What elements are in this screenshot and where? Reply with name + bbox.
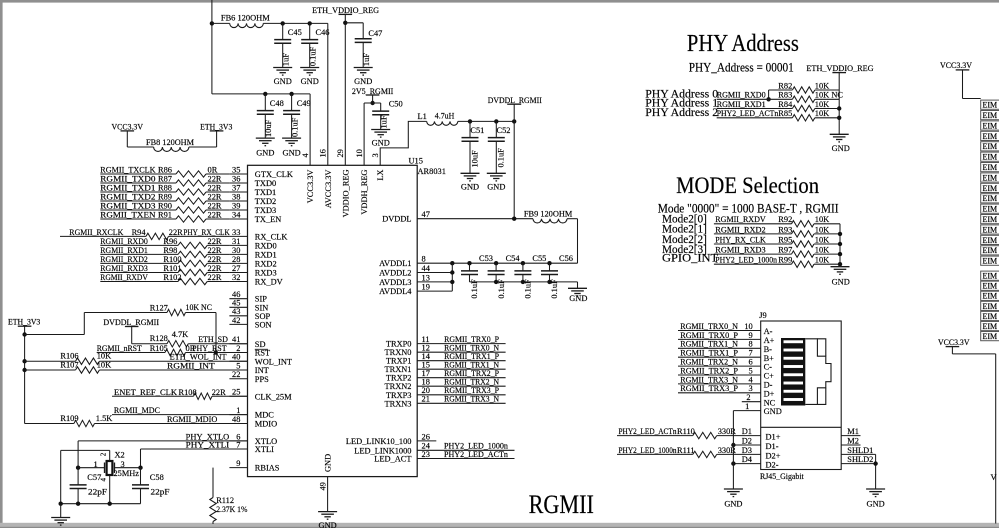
svg-text:RGMII_RXD0: RGMII_RXD0 <box>717 91 766 100</box>
svg-text:5: 5 <box>236 361 240 370</box>
svg-text:RGMII_TRX3_N: RGMII_TRX3_N <box>444 395 499 404</box>
svg-text:R94: R94 <box>132 228 147 237</box>
svg-text:C+: C+ <box>764 372 775 381</box>
svg-text:2: 2 <box>99 452 107 456</box>
svg-text:1: 1 <box>236 406 240 415</box>
svg-text:35: 35 <box>232 165 240 174</box>
svg-text:25MHz: 25MHz <box>114 469 140 478</box>
svg-text:GND: GND <box>764 407 782 416</box>
svg-text:0.1uF: 0.1uF <box>497 148 506 168</box>
svg-text:R92: R92 <box>778 215 792 224</box>
svg-text:3: 3 <box>121 460 125 469</box>
svg-text:34: 34 <box>232 210 241 219</box>
svg-text:EIM: EIM <box>983 194 998 203</box>
svg-text:RGMII_RXD2: RGMII_RXD2 <box>715 225 765 234</box>
svg-text:47: 47 <box>422 210 430 219</box>
svg-text:EIM: EIM <box>983 132 998 141</box>
svg-text:GND: GND <box>569 294 587 303</box>
svg-text:VDDH_REG: VDDH_REG <box>360 170 369 215</box>
svg-text:GND: GND <box>319 521 337 528</box>
svg-text:R84: R84 <box>778 100 793 109</box>
svg-text:40: 40 <box>232 353 240 362</box>
svg-text:27: 27 <box>232 264 240 273</box>
svg-text:RGMII_RXDV: RGMII_RXDV <box>100 273 148 282</box>
svg-text:EIM: EIM <box>983 312 998 321</box>
svg-text:EIM: EIM <box>983 246 998 255</box>
svg-text:D1+: D1+ <box>766 433 781 442</box>
svg-text:EIM: EIM <box>983 163 998 172</box>
svg-text:10K: 10K <box>815 246 829 255</box>
svg-text:R86: R86 <box>158 165 172 174</box>
svg-text:EIM: EIM <box>983 215 998 224</box>
svg-text:10: 10 <box>355 149 364 157</box>
svg-text:GND: GND <box>283 148 301 157</box>
svg-text:RGMII_INT: RGMII_INT <box>167 361 215 370</box>
svg-text:RXD3: RXD3 <box>255 269 277 278</box>
svg-text:NC: NC <box>764 398 776 407</box>
svg-text:9: 9 <box>236 459 240 468</box>
svg-text:32: 32 <box>232 273 240 282</box>
svg-text:39: 39 <box>232 201 240 210</box>
svg-text:D1: D1 <box>742 427 752 436</box>
svg-text:U15: U15 <box>409 157 423 166</box>
svg-text:RGMII_TRX0_P: RGMII_TRX0_P <box>680 331 738 340</box>
svg-text:RGMII_RXCLK: RGMII_RXCLK <box>69 228 123 237</box>
svg-text:5: 5 <box>749 366 753 375</box>
svg-text:0.1uF: 0.1uF <box>309 46 318 66</box>
svg-text:19: 19 <box>422 283 430 292</box>
svg-text:EIM: EIM <box>983 302 998 311</box>
svg-text:PHY Address 2: PHY Address 2 <box>645 105 718 119</box>
svg-text:RGMII_TRX1_P: RGMII_TRX1_P <box>680 349 738 358</box>
svg-text:22R: 22R <box>212 388 226 397</box>
svg-text:C48: C48 <box>270 99 284 108</box>
svg-text:22pF: 22pF <box>88 487 107 496</box>
svg-text:RJ45_Gigabit: RJ45_Gigabit <box>760 472 804 481</box>
svg-text:22R: 22R <box>208 255 222 264</box>
svg-text:SD: SD <box>255 340 266 349</box>
svg-text:16: 16 <box>319 149 328 157</box>
svg-text:GTX_CLK: GTX_CLK <box>255 170 293 179</box>
svg-text:42: 42 <box>232 316 240 325</box>
svg-text:VCC3.3V: VCC3.3V <box>112 122 144 131</box>
svg-text:33: 33 <box>232 228 240 237</box>
svg-text:GND: GND <box>724 500 742 509</box>
svg-text:AVDDL4: AVDDL4 <box>379 287 412 296</box>
svg-text:TX_EN: TX_EN <box>255 215 282 224</box>
svg-text:GND: GND <box>256 148 274 157</box>
svg-text:1: 1 <box>745 402 749 411</box>
svg-text:7: 7 <box>749 349 753 358</box>
svg-text:XTLI: XTLI <box>255 445 274 454</box>
svg-text:22R: 22R <box>208 192 222 201</box>
svg-text:RBIAS: RBIAS <box>255 464 280 473</box>
svg-text:PHY2_LED_ACTn: PHY2_LED_ACTn <box>444 450 509 459</box>
svg-text:PHY_RX_CLK: PHY_RX_CLK <box>715 235 765 244</box>
svg-text:FB9 120OHM: FB9 120OHM <box>524 209 573 218</box>
svg-text:SHLD2: SHLD2 <box>847 455 873 464</box>
svg-text:13: 13 <box>422 273 430 282</box>
svg-text:RGMII_RXD3: RGMII_RXD3 <box>715 246 765 255</box>
svg-text:R108: R108 <box>179 388 197 397</box>
svg-text:10K: 10K <box>815 225 829 234</box>
svg-text:R112: R112 <box>216 496 234 505</box>
svg-text:D1-: D1- <box>766 442 779 451</box>
svg-text:R88: R88 <box>158 183 172 192</box>
svg-text:EIM: EIM <box>983 173 998 182</box>
svg-text:R111: R111 <box>677 446 695 455</box>
svg-text:EIM: EIM <box>983 121 998 130</box>
svg-text:GND: GND <box>324 454 333 472</box>
svg-text:EIM: EIM <box>983 322 998 331</box>
svg-text:10K NC: 10K NC <box>815 91 844 100</box>
svg-text:R93: R93 <box>778 225 792 234</box>
svg-text:RGMII_RXDV: RGMII_RXDV <box>715 215 765 224</box>
svg-text:C-: C- <box>764 363 773 372</box>
svg-text:EIM: EIM <box>983 153 998 162</box>
svg-text:B+: B+ <box>764 354 775 363</box>
svg-text:A+: A+ <box>764 336 775 345</box>
svg-text:EIM: EIM <box>983 257 998 266</box>
svg-text:RXD2: RXD2 <box>255 259 277 268</box>
svg-text:R110: R110 <box>677 427 695 436</box>
svg-text:C50: C50 <box>389 100 403 109</box>
svg-text:PHY2_LED_ACTn: PHY2_LED_ACTn <box>619 427 678 436</box>
svg-text:R95: R95 <box>778 235 792 244</box>
svg-text:49: 49 <box>318 482 327 490</box>
svg-text:EIM: EIM <box>983 184 998 193</box>
svg-text:M1: M1 <box>847 427 859 436</box>
svg-text:AVCC3.3V: AVCC3.3V <box>324 170 333 209</box>
svg-text:PHY_RX_CLK: PHY_RX_CLK <box>183 228 229 237</box>
svg-text:B-: B- <box>764 345 773 354</box>
svg-text:22pF: 22pF <box>151 487 170 496</box>
svg-text:TXD2: TXD2 <box>255 197 276 206</box>
svg-text:R127: R127 <box>150 304 168 313</box>
svg-text:D2: D2 <box>742 436 752 445</box>
svg-text:R83: R83 <box>778 91 792 100</box>
svg-text:R100: R100 <box>163 255 181 264</box>
svg-text:EIM: EIM <box>983 332 998 341</box>
svg-text:R89: R89 <box>158 192 172 201</box>
svg-text:C57: C57 <box>87 473 101 482</box>
svg-text:PPS: PPS <box>255 375 269 384</box>
svg-text:EIM: EIM <box>983 225 998 234</box>
svg-text:SHLD1: SHLD1 <box>847 446 873 455</box>
svg-text:TXD0: TXD0 <box>255 179 276 188</box>
svg-text:10K: 10K <box>815 100 829 109</box>
svg-text:C52: C52 <box>497 126 511 135</box>
svg-text:GPIO_INT: GPIO_INT <box>662 251 719 265</box>
svg-text:C49: C49 <box>297 99 311 108</box>
svg-text:1uF: 1uF <box>282 53 291 66</box>
svg-text:RX_CLK: RX_CLK <box>255 232 288 241</box>
svg-text:RX_DV: RX_DV <box>255 278 283 287</box>
svg-text:VCC3.3V: VCC3.3V <box>940 61 972 70</box>
svg-text:ETH_VDDIO_REG: ETH_VDDIO_REG <box>312 6 379 15</box>
svg-text:ENET_REF_CLK: ENET_REF_CLK <box>114 388 177 397</box>
svg-text:MODE Selection: MODE Selection <box>676 173 819 198</box>
svg-text:GND: GND <box>832 277 850 286</box>
svg-text:RST: RST <box>255 349 270 358</box>
svg-text:R99: R99 <box>778 256 792 265</box>
svg-text:1.5K: 1.5K <box>96 414 113 423</box>
svg-text:RGMII_TXD0: RGMII_TXD0 <box>100 174 155 183</box>
svg-text:EIM: EIM <box>983 272 998 281</box>
svg-text:RGMII_RXD0: RGMII_RXD0 <box>100 237 148 246</box>
svg-text:22R: 22R <box>208 237 222 246</box>
svg-text:37: 37 <box>232 183 240 192</box>
svg-text:10uF: 10uF <box>470 150 479 168</box>
svg-text:2: 2 <box>236 344 240 353</box>
svg-text:RGMII_TRX3_P: RGMII_TRX3_P <box>680 384 738 393</box>
svg-text:PHY2_LED_1000n: PHY2_LED_1000n <box>715 256 777 265</box>
svg-text:22R: 22R <box>208 246 222 255</box>
svg-text:RGMII_TXCLK: RGMII_TXCLK <box>100 165 155 174</box>
svg-text:31: 31 <box>232 237 240 246</box>
svg-text:RGMII_TXD3: RGMII_TXD3 <box>100 201 155 210</box>
svg-text:RGMII_TXD1: RGMII_TXD1 <box>100 183 155 192</box>
svg-text:10K: 10K <box>815 235 829 244</box>
svg-text:C45: C45 <box>288 28 302 37</box>
svg-text:DVDDL_RGMII: DVDDL_RGMII <box>488 96 542 105</box>
svg-text:AVDDL1: AVDDL1 <box>379 259 411 268</box>
svg-text:J9: J9 <box>759 311 766 320</box>
svg-text:R98: R98 <box>163 246 177 255</box>
svg-text:RGMII_MDIO: RGMII_MDIO <box>167 415 217 424</box>
svg-text:10K NC: 10K NC <box>186 303 213 312</box>
svg-text:INT: INT <box>255 366 269 375</box>
svg-text:M2: M2 <box>847 436 859 445</box>
svg-text:1: 1 <box>94 460 98 469</box>
svg-text:D4: D4 <box>742 455 753 464</box>
svg-text:3: 3 <box>371 153 380 157</box>
svg-text:RGMII_TRX1_N: RGMII_TRX1_N <box>680 340 738 349</box>
svg-text:10: 10 <box>744 322 752 331</box>
svg-text:41: 41 <box>232 335 240 344</box>
svg-text:22R: 22R <box>208 264 222 273</box>
svg-text:C47: C47 <box>368 29 382 38</box>
svg-text:RGMII_TXD2: RGMII_TXD2 <box>100 192 155 201</box>
svg-text:22R: 22R <box>208 273 222 282</box>
svg-text:GND: GND <box>354 77 372 86</box>
svg-text:D+: D+ <box>764 389 775 398</box>
svg-text:RGMII_RXD3: RGMII_RXD3 <box>100 264 148 273</box>
svg-text:A-: A- <box>764 327 773 336</box>
svg-text:CLK_25M: CLK_25M <box>255 392 292 401</box>
svg-text:C54: C54 <box>506 254 521 263</box>
svg-text:0R: 0R <box>208 165 218 174</box>
svg-text:44: 44 <box>422 264 431 273</box>
svg-text:10uF: 10uF <box>264 119 273 137</box>
svg-text:VCC3.3V: VCC3.3V <box>938 338 970 347</box>
svg-text:RGMII_MDC: RGMII_MDC <box>114 406 160 415</box>
svg-text:VDDIO_REG: VDDIO_REG <box>341 170 350 218</box>
svg-text:RGMII_RXD1: RGMII_RXD1 <box>100 246 148 255</box>
svg-text:R85: R85 <box>778 109 792 118</box>
svg-text:X2: X2 <box>115 451 125 460</box>
svg-text:7: 7 <box>236 440 240 449</box>
svg-text:PHY_RST: PHY_RST <box>192 344 227 353</box>
svg-text:22R: 22R <box>208 183 222 192</box>
svg-text:RGMII_TRX2_P: RGMII_TRX2_P <box>680 366 738 375</box>
svg-text:EIM: EIM <box>983 282 998 291</box>
svg-text:R107: R107 <box>60 360 78 369</box>
svg-text:28: 28 <box>232 255 240 264</box>
svg-text:48: 48 <box>232 415 240 424</box>
svg-text:D2-: D2- <box>766 461 779 470</box>
svg-text:10K: 10K <box>815 109 829 118</box>
svg-text:MDC: MDC <box>255 411 274 420</box>
svg-text:R91: R91 <box>158 210 172 219</box>
svg-text:22R: 22R <box>208 174 222 183</box>
svg-text:R106: R106 <box>60 352 78 361</box>
svg-text:AVDDL3: AVDDL3 <box>379 278 411 287</box>
svg-text:38: 38 <box>232 192 240 201</box>
svg-text:22R: 22R <box>208 201 222 210</box>
svg-text:C55: C55 <box>532 254 546 263</box>
svg-text:RXD0: RXD0 <box>255 241 277 250</box>
svg-text:SON: SON <box>255 320 272 329</box>
svg-text:26: 26 <box>422 432 430 441</box>
svg-text:RGMII_RXD1: RGMII_RXD1 <box>717 100 766 109</box>
svg-text:GND: GND <box>461 183 479 192</box>
svg-text:FB6 120OHM: FB6 120OHM <box>221 14 270 23</box>
svg-text:4.7uH: 4.7uH <box>435 112 455 121</box>
svg-text:8: 8 <box>749 340 753 349</box>
svg-text:1uF: 1uF <box>362 53 371 66</box>
svg-text:EIM: EIM <box>983 205 998 214</box>
svg-text:R128: R128 <box>150 334 168 343</box>
svg-text:22R: 22R <box>169 228 183 237</box>
svg-text:9: 9 <box>749 331 753 340</box>
svg-text:LX: LX <box>376 170 385 181</box>
svg-text:MDIO: MDIO <box>255 420 277 429</box>
svg-text:R87: R87 <box>158 174 172 183</box>
svg-text:8: 8 <box>422 255 426 264</box>
svg-text:R96: R96 <box>163 237 177 246</box>
svg-text:GND: GND <box>301 77 319 86</box>
svg-text:RGMII_RXD2: RGMII_RXD2 <box>100 255 148 264</box>
svg-text:EIM: EIM <box>983 111 998 120</box>
svg-text:FB8 120OHM: FB8 120OHM <box>146 138 195 147</box>
svg-text:ETH_3V3: ETH_3V3 <box>8 318 40 327</box>
svg-text:RGMII_TXEN: RGMII_TXEN <box>100 210 155 219</box>
svg-text:29: 29 <box>336 149 345 157</box>
svg-text:AVDDL2: AVDDL2 <box>379 269 411 278</box>
svg-text:22R: 22R <box>208 210 222 219</box>
svg-text:PHY Address: PHY Address <box>687 30 799 57</box>
svg-text:D2+: D2+ <box>766 452 781 461</box>
svg-text:C46: C46 <box>316 28 330 37</box>
svg-text:2.37K 1%: 2.37K 1% <box>216 505 247 514</box>
svg-text:4.7K: 4.7K <box>172 330 189 339</box>
svg-text:C53: C53 <box>479 254 493 263</box>
svg-text:RGMII: RGMII <box>529 490 594 519</box>
svg-text:2: 2 <box>746 393 750 402</box>
svg-text:EIM: EIM <box>983 236 998 245</box>
svg-text:R109: R109 <box>60 414 78 423</box>
svg-text:LED_LINK10_100: LED_LINK10_100 <box>346 437 412 446</box>
svg-text:RGMII_TRX3_N: RGMII_TRX3_N <box>680 375 738 384</box>
svg-text:LED_ACT: LED_ACT <box>374 455 411 464</box>
svg-text:PHY2_LED_ACTn: PHY2_LED_ACTn <box>717 109 779 118</box>
svg-text:10K: 10K <box>815 256 829 265</box>
svg-text:GND: GND <box>372 139 390 148</box>
svg-text:D3: D3 <box>742 446 752 455</box>
svg-text:GND: GND <box>832 144 850 153</box>
svg-text:AR8031: AR8031 <box>418 167 446 176</box>
svg-text:6: 6 <box>749 358 753 367</box>
svg-text:36: 36 <box>232 174 240 183</box>
svg-text:R105: R105 <box>150 344 168 353</box>
svg-text:R97: R97 <box>778 246 792 255</box>
svg-text:RXD1: RXD1 <box>255 250 277 259</box>
svg-text:DVDDL_RGMII: DVDDL_RGMII <box>103 318 159 327</box>
svg-text:GND: GND <box>274 77 292 86</box>
svg-text:R102: R102 <box>163 273 181 282</box>
svg-text:ETH_WOL_INT: ETH_WOL_INT <box>170 353 227 362</box>
svg-text:23: 23 <box>422 450 430 459</box>
svg-text:10K: 10K <box>97 352 111 361</box>
svg-text:PHY2_LED_1000n: PHY2_LED_1000n <box>619 446 678 455</box>
svg-text:EIM: EIM <box>983 142 998 151</box>
svg-text:WOL_INT: WOL_INT <box>255 357 292 366</box>
svg-text:0.1uF: 0.1uF <box>291 117 300 137</box>
svg-text:VCC3.3V: VCC3.3V <box>306 170 315 204</box>
svg-text:ETH_VDDIO_REG: ETH_VDDIO_REG <box>806 64 873 73</box>
svg-text:R82: R82 <box>778 81 792 90</box>
svg-text:V: V <box>991 473 997 482</box>
svg-text:EIM: EIM <box>983 101 998 110</box>
svg-text:30: 30 <box>232 246 240 255</box>
svg-text:10K: 10K <box>815 81 829 90</box>
svg-text:GND: GND <box>487 183 505 192</box>
svg-text:TXD1: TXD1 <box>255 188 276 197</box>
svg-text:D-: D- <box>764 381 773 390</box>
svg-text:TXD3: TXD3 <box>255 206 276 215</box>
svg-text:25: 25 <box>232 388 240 397</box>
svg-text:PHY_XTLI: PHY_XTLI <box>186 441 230 450</box>
svg-text:DVDDL: DVDDL <box>382 215 411 224</box>
svg-text:3: 3 <box>749 384 753 393</box>
svg-text:TRXN3: TRXN3 <box>385 399 412 408</box>
svg-text:L1: L1 <box>418 112 427 121</box>
svg-text:RGMII_TRX2_N: RGMII_TRX2_N <box>680 358 738 367</box>
svg-text:R90: R90 <box>158 201 172 210</box>
svg-text:GND: GND <box>867 500 885 509</box>
svg-text:EIM: EIM <box>983 292 998 301</box>
svg-text:1uF: 1uF <box>380 115 389 128</box>
svg-text:C56: C56 <box>559 254 573 263</box>
svg-text:ETH_SD: ETH_SD <box>198 335 228 344</box>
svg-text:22: 22 <box>232 370 240 379</box>
svg-text:C58: C58 <box>150 473 164 482</box>
svg-text:10K: 10K <box>815 215 829 224</box>
svg-text:PHY_Address = 00001: PHY_Address = 00001 <box>689 61 794 75</box>
svg-text:21: 21 <box>422 395 430 404</box>
svg-text:10K: 10K <box>97 360 111 369</box>
svg-text:ETH_3V3: ETH_3V3 <box>200 122 232 131</box>
svg-text:RGMII_TRX0_N: RGMII_TRX0_N <box>680 322 738 331</box>
svg-text:C51: C51 <box>470 126 484 135</box>
svg-text:R101: R101 <box>163 264 181 273</box>
